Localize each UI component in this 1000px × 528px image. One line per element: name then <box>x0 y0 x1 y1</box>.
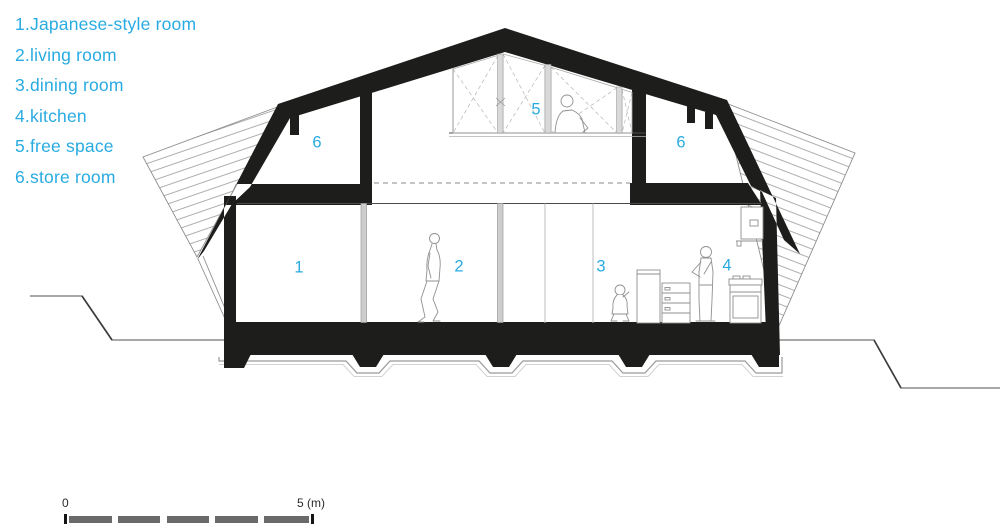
legend-item-3: 3.dining room <box>15 70 196 101</box>
room-label-japanese-room: 1 <box>294 259 303 278</box>
figure-child <box>611 285 629 321</box>
room-label-free-space: 5 <box>531 101 540 120</box>
legend-item-1: 1.Japanese-style room <box>15 9 196 40</box>
room-label-store-room-left: 6 <box>312 134 321 153</box>
terrain-line-left <box>30 296 226 340</box>
room-label-dining-room: 3 <box>596 258 605 277</box>
scale-segment <box>69 516 112 523</box>
legend-item-4: 4.kitchen <box>15 101 196 132</box>
architectural-section-page: 1.Japanese-style room 2.living room 3.di… <box>0 0 1000 528</box>
room-label-living-room: 2 <box>454 258 463 277</box>
drawer-unit <box>662 283 690 323</box>
legend-item-2: 2.living room <box>15 40 196 71</box>
scale-start-label: 0 <box>62 496 69 510</box>
room-legend: 1.Japanese-style room 2.living room 3.di… <box>15 9 196 192</box>
scale-segment <box>215 516 258 523</box>
figure-attic-person <box>555 95 588 133</box>
legend-item-6: 6.store room <box>15 162 196 193</box>
stove <box>729 276 762 323</box>
interior-partitions <box>361 204 593 324</box>
scale-tick-start <box>64 514 67 524</box>
tall-cabinet <box>637 270 660 323</box>
scale-end-label: 5 (m) <box>297 496 325 510</box>
legend-item-5: 5.free space <box>15 131 196 162</box>
scale-segment <box>118 516 160 523</box>
scale-segment <box>264 516 309 523</box>
room-label-kitchen: 4 <box>722 257 731 276</box>
room-label-store-room-right: 6 <box>676 134 685 153</box>
scale-segment <box>167 516 209 523</box>
scale-tick-end <box>311 514 314 524</box>
figure-kitchen-adult <box>692 247 715 322</box>
terrain-line-right <box>776 340 1000 388</box>
figure-walking-adult <box>418 234 440 323</box>
